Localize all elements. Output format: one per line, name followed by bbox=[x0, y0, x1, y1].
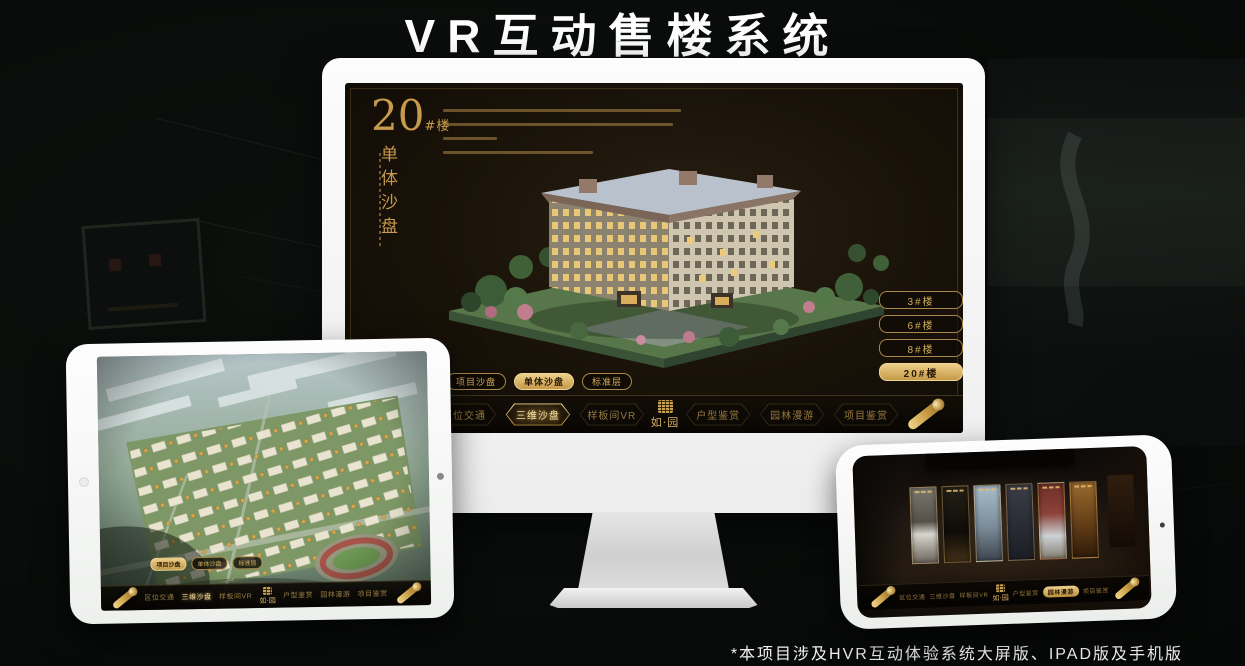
seal-icon bbox=[658, 400, 673, 413]
nav-item-project[interactable]: 项目鉴赏 bbox=[831, 403, 901, 427]
tablet-view-tab-group: 项目沙盘 单体沙盘 标准层 bbox=[150, 556, 262, 571]
scroll-menu-icon[interactable] bbox=[396, 583, 421, 605]
tablet-screen: 项目沙盘 单体沙盘 标准层 区位交通 三维沙盘 样板间VR 如·园 户型鉴赏 园… bbox=[97, 351, 431, 611]
aerial-masterplan-render bbox=[97, 351, 431, 611]
scene-panel[interactable] bbox=[1069, 481, 1099, 559]
scroll-menu-icon[interactable] bbox=[870, 586, 894, 608]
promo-canvas: VR互动售楼系统 20#楼 单体沙盘 bbox=[0, 0, 1245, 666]
nav-item-floorplan[interactable]: 户型鉴赏 bbox=[1013, 587, 1039, 597]
brand-logo: 如·园 bbox=[259, 586, 276, 605]
nav-item-floorplan[interactable]: 户型鉴赏 bbox=[283, 590, 313, 601]
floor-button-20[interactable]: 20#楼 bbox=[879, 363, 963, 381]
building-number: 20#楼 bbox=[371, 95, 450, 137]
monitor-stand-neck bbox=[578, 512, 730, 592]
lit-doorway bbox=[1107, 475, 1135, 548]
scene-panel-strip bbox=[909, 481, 1099, 564]
floor-button-8[interactable]: 8#楼 bbox=[879, 339, 963, 357]
nav-item-location[interactable]: 区位交通 bbox=[899, 591, 925, 601]
seal-icon bbox=[996, 584, 1005, 592]
tab-building-sandtable[interactable]: 单体沙盘 bbox=[191, 557, 227, 571]
tab-building-sandtable[interactable]: 单体沙盘 bbox=[514, 373, 574, 390]
view-tab-group: 项目沙盘 单体沙盘 标准层 bbox=[446, 373, 632, 390]
nav-item-floorplan[interactable]: 户型鉴赏 bbox=[683, 403, 753, 427]
scene-panel[interactable] bbox=[941, 485, 971, 563]
tab-standard-floor[interactable]: 标准层 bbox=[232, 556, 262, 570]
monitor-stand-base bbox=[550, 588, 758, 608]
background-plaque bbox=[82, 218, 207, 330]
floor-button-6[interactable]: 6#楼 bbox=[879, 315, 963, 333]
nav-item-garden-tour[interactable]: 园林漫游 bbox=[320, 589, 350, 600]
nav-item-sandtable-3d[interactable]: 三维沙盘 bbox=[929, 590, 955, 600]
scroll-menu-icon[interactable] bbox=[1114, 578, 1138, 600]
tablet-device: 项目沙盘 单体沙盘 标准层 区位交通 三维沙盘 样板间VR 如·园 户型鉴赏 园… bbox=[66, 338, 455, 625]
nav-item-sandtable-3d[interactable]: 三维沙盘 bbox=[182, 592, 212, 603]
version-footnote: *本项目涉及HVR互动体验系统大屏版、IPAD版及手机版 bbox=[731, 640, 1183, 664]
brand-logo: 如·园 bbox=[651, 400, 680, 430]
subtitle-divider bbox=[379, 153, 381, 249]
scene-panel[interactable] bbox=[909, 486, 939, 564]
phone-screen: 区位交通 三维沙盘 样板间VR 如·园 户型鉴赏 园林漫游 项目鉴赏 bbox=[852, 446, 1151, 618]
nav-item-model-room-vr[interactable]: 样板间VR bbox=[577, 403, 647, 427]
nav-item-project[interactable]: 项目鉴赏 bbox=[358, 589, 388, 600]
floor-button-3[interactable]: 3#楼 bbox=[879, 291, 963, 309]
scene-panel[interactable] bbox=[1005, 483, 1035, 561]
scroll-menu-icon[interactable] bbox=[906, 398, 944, 431]
tab-project-sandtable[interactable]: 项目沙盘 bbox=[150, 557, 186, 571]
seal-icon bbox=[263, 586, 272, 594]
brand-logo: 如·园 bbox=[992, 583, 1009, 603]
nav-item-garden-tour[interactable]: 园林漫游 bbox=[757, 403, 827, 427]
floor-button-group: 3#楼 6#楼 8#楼 20#楼 bbox=[879, 291, 963, 381]
building-3d-render bbox=[429, 141, 899, 386]
scene-panel[interactable] bbox=[1037, 482, 1067, 560]
scene-panel[interactable] bbox=[973, 484, 1003, 562]
page-title: VR互动售楼系统 bbox=[0, 0, 1245, 66]
nav-item-garden-tour[interactable]: 园林漫游 bbox=[1043, 585, 1079, 597]
phone-device: 区位交通 三维沙盘 样板间VR 如·园 户型鉴赏 园林漫游 项目鉴赏 bbox=[835, 434, 1177, 630]
background-river bbox=[1005, 130, 1205, 330]
nav-item-model-room-vr[interactable]: 样板间VR bbox=[959, 589, 988, 599]
nav-item-location[interactable]: 区位交通 bbox=[144, 593, 174, 604]
tab-standard-floor[interactable]: 标准层 bbox=[582, 373, 632, 390]
tab-project-sandtable[interactable]: 项目沙盘 bbox=[446, 373, 506, 390]
nav-item-model-room-vr[interactable]: 样板间VR bbox=[219, 591, 252, 602]
nav-item-project[interactable]: 项目鉴赏 bbox=[1083, 585, 1109, 595]
scroll-menu-icon[interactable] bbox=[112, 587, 137, 609]
nav-item-sandtable-3d[interactable]: 三维沙盘 bbox=[503, 403, 573, 427]
tablet-home-button[interactable] bbox=[437, 473, 444, 480]
